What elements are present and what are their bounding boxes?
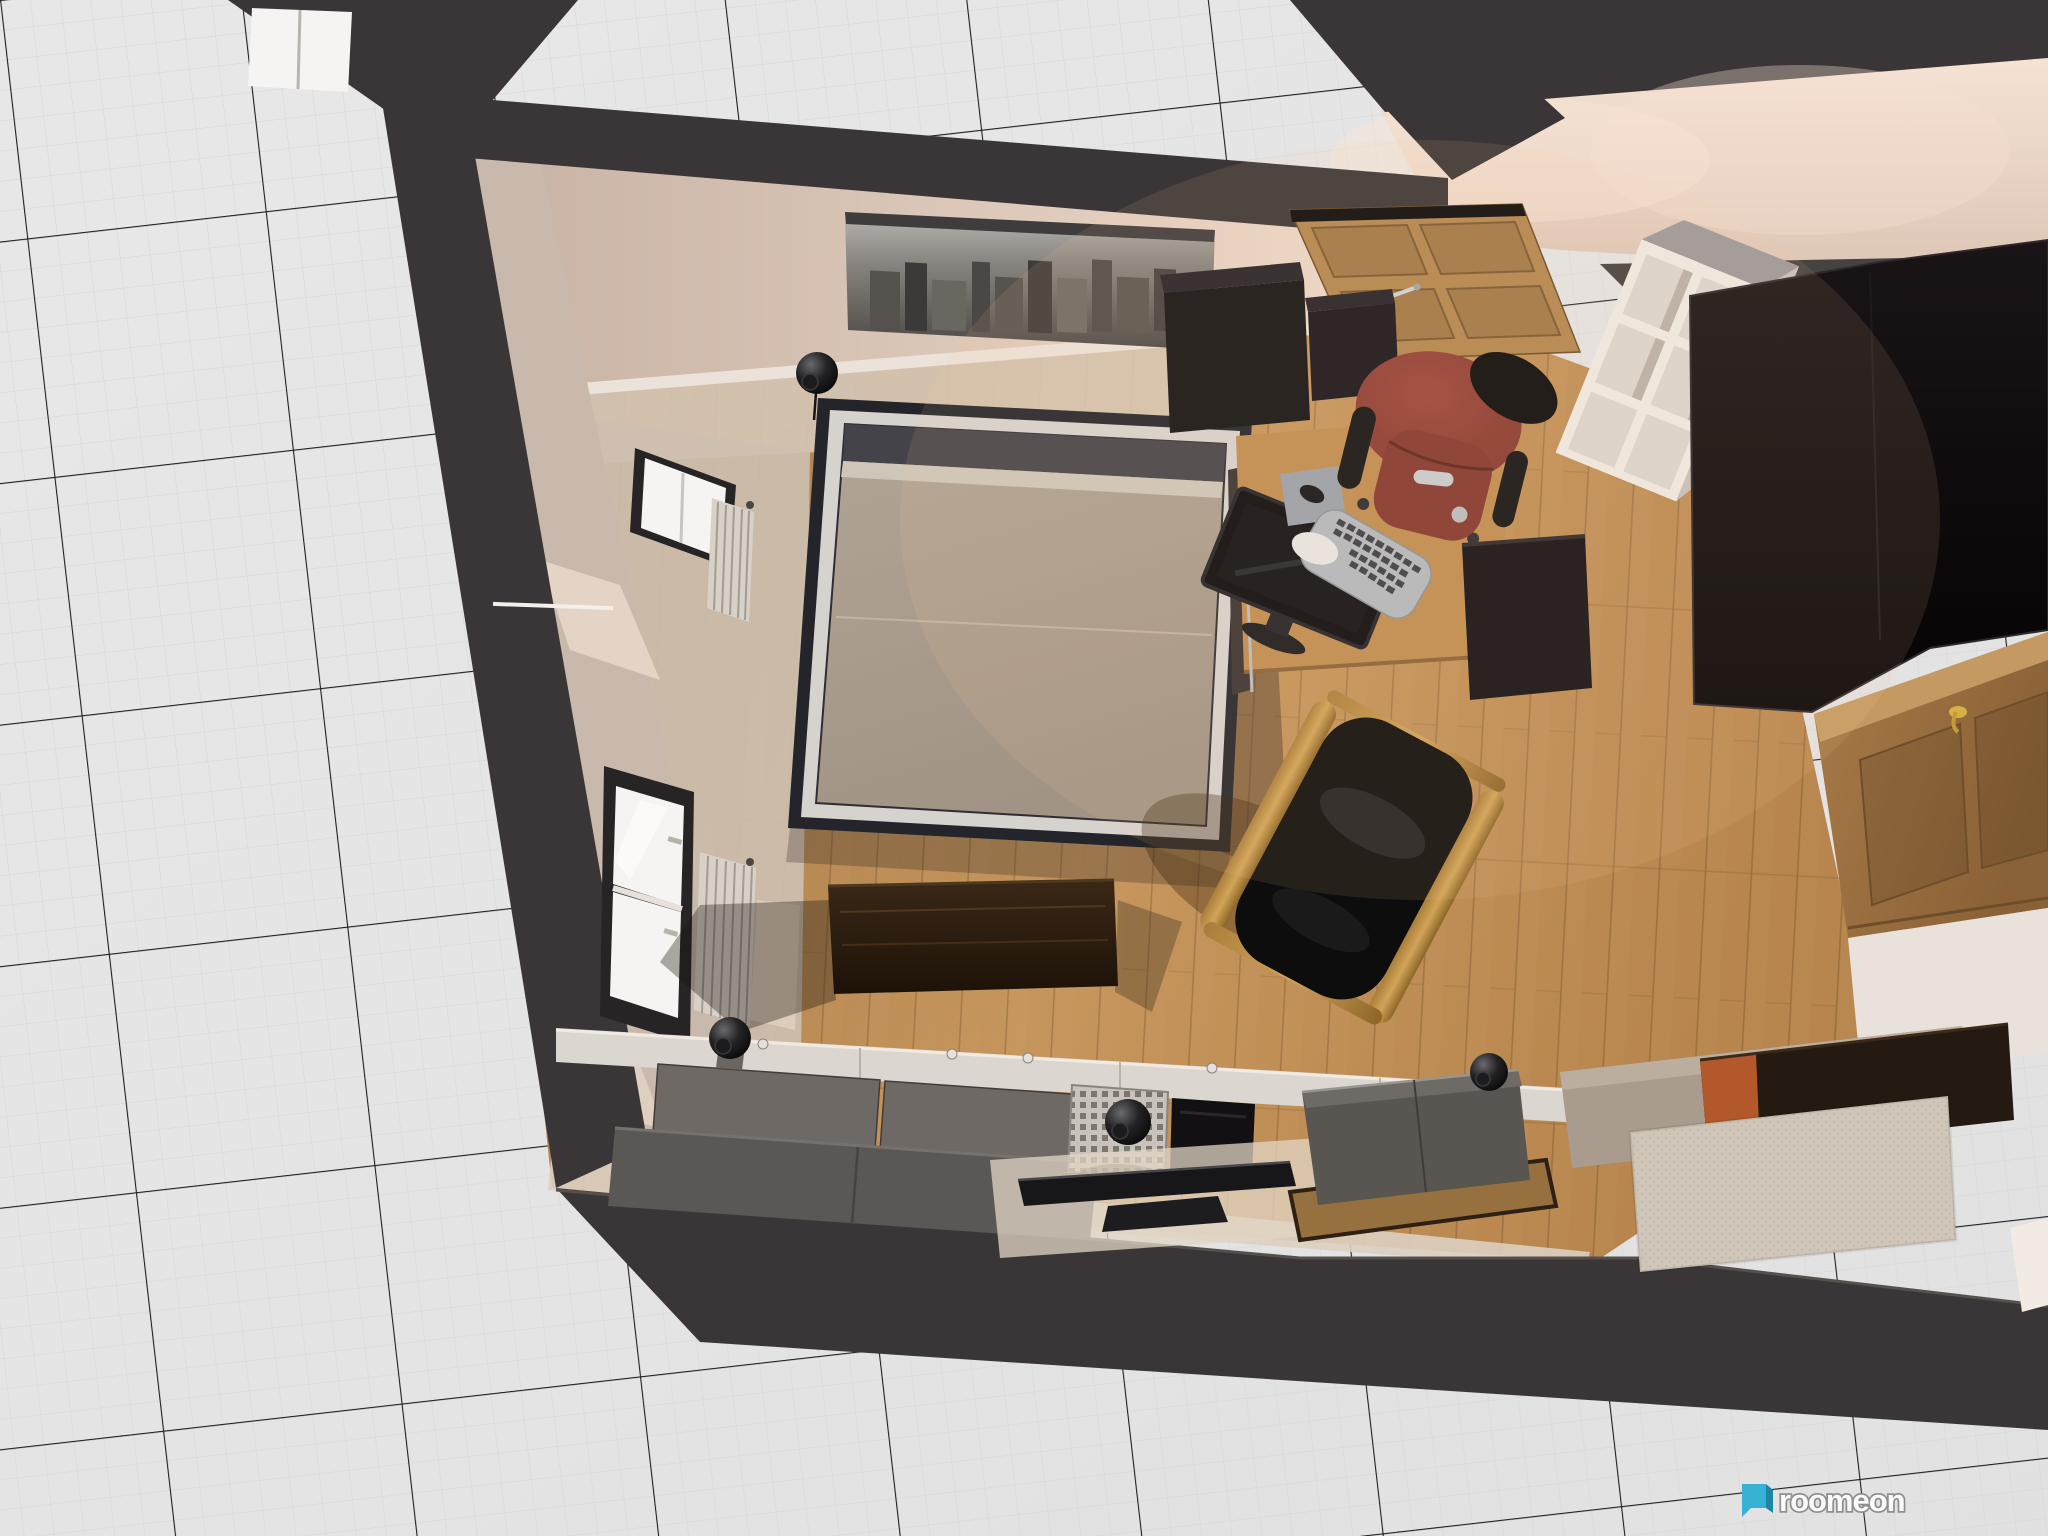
radiator-upper[interactable] xyxy=(707,498,754,622)
grille-speaker-ball[interactable] xyxy=(1105,1099,1151,1145)
warm-glow xyxy=(900,140,1940,900)
speaker-cone xyxy=(802,374,818,390)
ledge-knob-4 xyxy=(1207,1063,1217,1073)
wall-glow-right xyxy=(1590,65,2010,235)
media-speaker-cone xyxy=(1476,1072,1490,1086)
floor-speaker-ball xyxy=(709,1017,751,1059)
window-top[interactable] xyxy=(248,8,352,92)
radiator-upper-valve xyxy=(746,501,754,509)
speaker-ball xyxy=(796,352,838,394)
cabinet-keyplate xyxy=(1949,706,1967,718)
floor-speaker-cone xyxy=(715,1038,731,1054)
sideboard-body xyxy=(828,880,1118,994)
window-lower[interactable] xyxy=(600,766,694,1044)
window-upper-mullion xyxy=(681,473,683,543)
media-speaker-ball[interactable] xyxy=(1470,1053,1508,1091)
ledge-knob-1 xyxy=(758,1039,768,1049)
roomeon-render-canvas: roomeon xyxy=(0,0,2048,1536)
roomeon-logo-text: roomeon xyxy=(1779,1483,1905,1518)
window-top-mullion xyxy=(298,10,300,89)
grille-speaker-cone xyxy=(1112,1123,1128,1139)
ledge-knob-2 xyxy=(947,1049,957,1059)
ledge-knob-3 xyxy=(1023,1053,1033,1063)
radiator-lower-valve xyxy=(746,858,754,866)
cabinet-panel-right xyxy=(1975,692,2048,868)
